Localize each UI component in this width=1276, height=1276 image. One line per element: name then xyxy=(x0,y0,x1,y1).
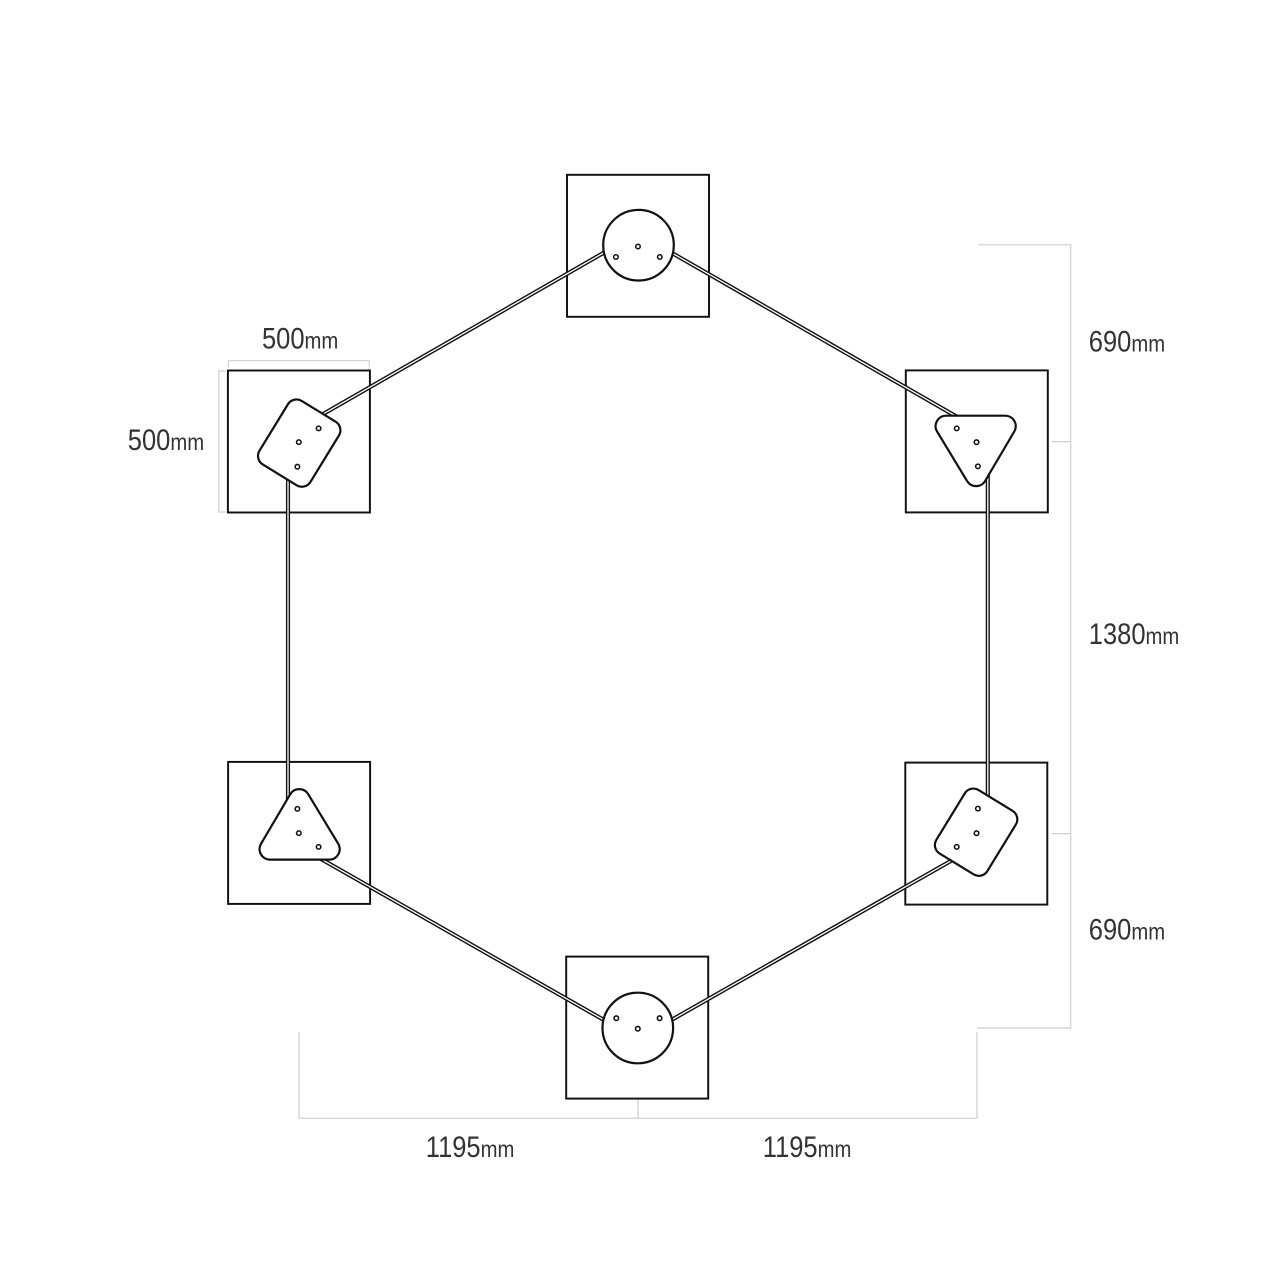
svg-text:1380mm: 1380mm xyxy=(1089,617,1179,650)
svg-text:1195mm: 1195mm xyxy=(426,1130,515,1163)
svg-text:1195mm: 1195mm xyxy=(763,1130,852,1163)
svg-text:500mm: 500mm xyxy=(128,424,204,457)
svg-text:500mm: 500mm xyxy=(262,322,338,355)
svg-text:690mm: 690mm xyxy=(1089,913,1165,946)
svg-text:690mm: 690mm xyxy=(1089,325,1165,358)
